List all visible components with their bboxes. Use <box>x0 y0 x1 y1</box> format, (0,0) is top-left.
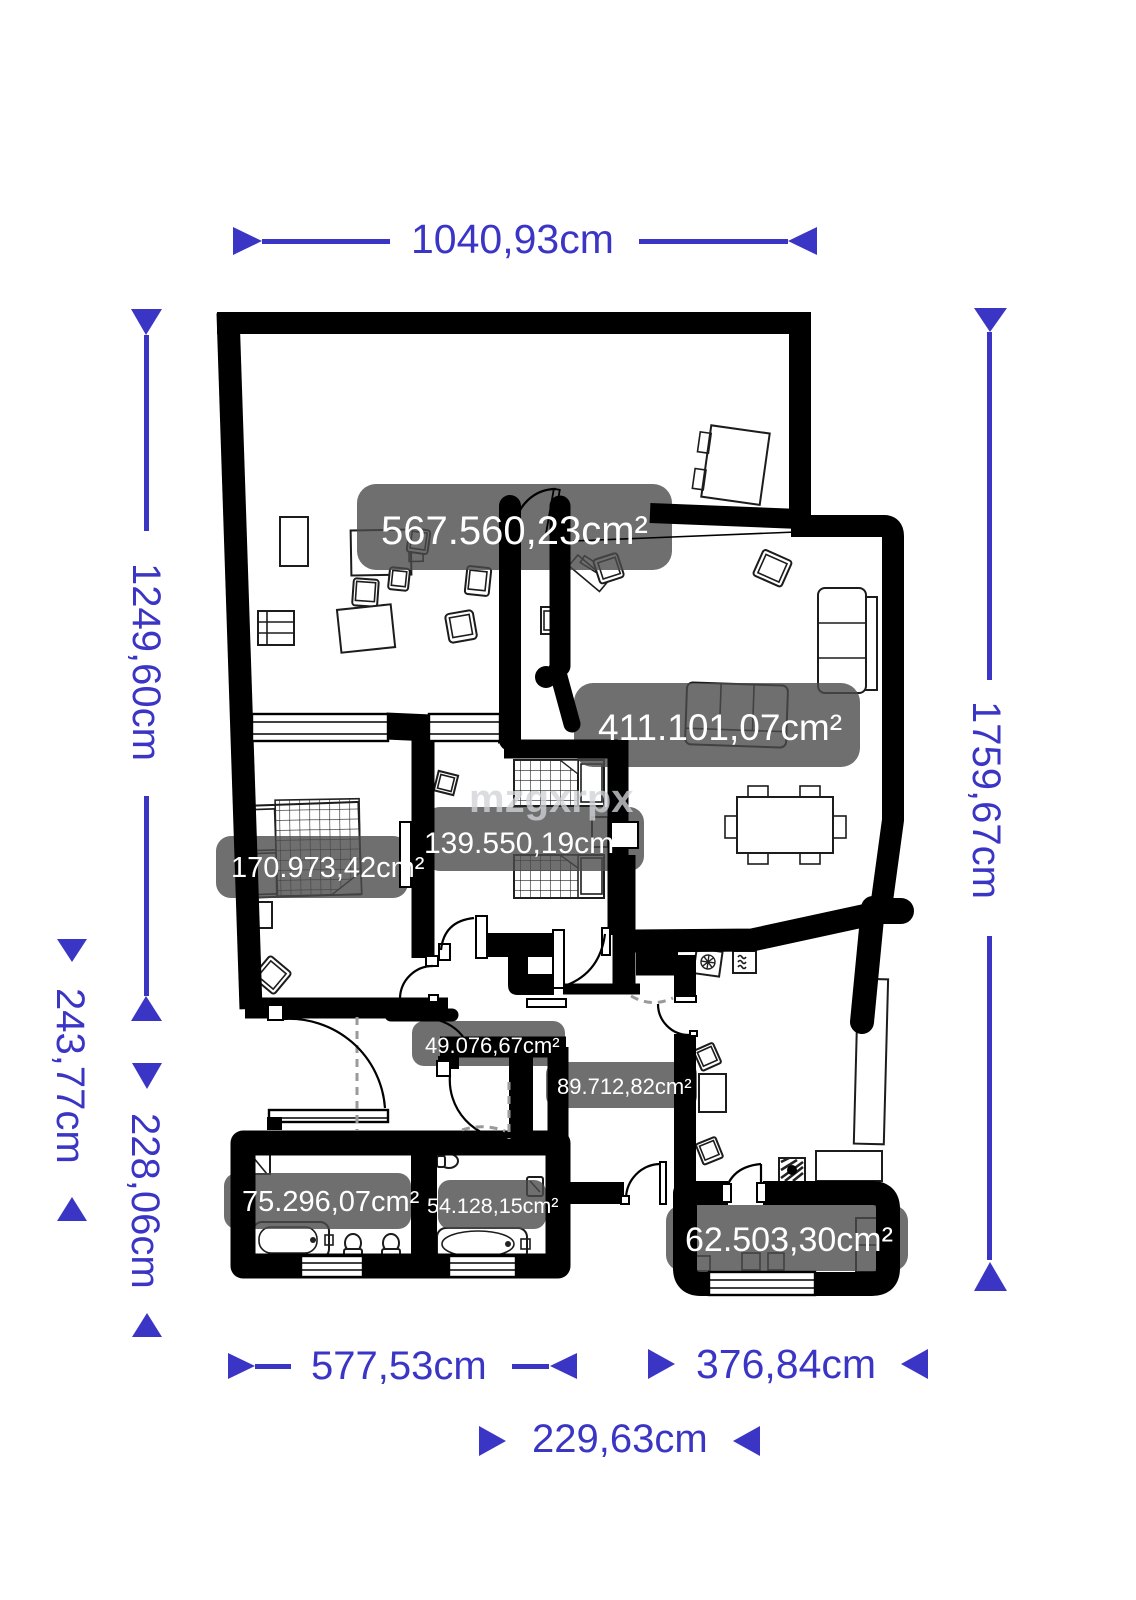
svg-text:1040,93cm: 1040,93cm <box>411 216 614 262</box>
svg-text:567.560,23cm²: 567.560,23cm² <box>381 509 648 553</box>
svg-text:49.076,67cm²: 49.076,67cm² <box>425 1033 560 1058</box>
svg-text:376,84cm: 376,84cm <box>696 1341 876 1387</box>
svg-text:170.973,42cm²: 170.973,42cm² <box>231 852 425 884</box>
svg-text:139.550,19cm²: 139.550,19cm² <box>424 827 624 860</box>
svg-text:411.101,07cm²: 411.101,07cm² <box>598 707 842 748</box>
svg-text:75.296,07cm²: 75.296,07cm² <box>242 1186 420 1218</box>
svg-text:1759,67cm: 1759,67cm <box>964 701 1008 899</box>
svg-text:243,77cm: 243,77cm <box>48 988 92 1164</box>
svg-text:1249,60cm: 1249,60cm <box>124 563 168 761</box>
svg-text:62.503,30cm²: 62.503,30cm² <box>685 1221 893 1259</box>
svg-text:577,53cm: 577,53cm <box>311 1344 487 1388</box>
svg-text:mzgxrpx: mzgxrpx <box>469 777 634 821</box>
svg-text:229,63cm: 229,63cm <box>532 1417 708 1461</box>
svg-text:228,06cm: 228,06cm <box>123 1113 167 1289</box>
svg-text:89.712,82cm²: 89.712,82cm² <box>557 1074 692 1099</box>
svg-text:54.128,15cm²: 54.128,15cm² <box>427 1194 558 1218</box>
